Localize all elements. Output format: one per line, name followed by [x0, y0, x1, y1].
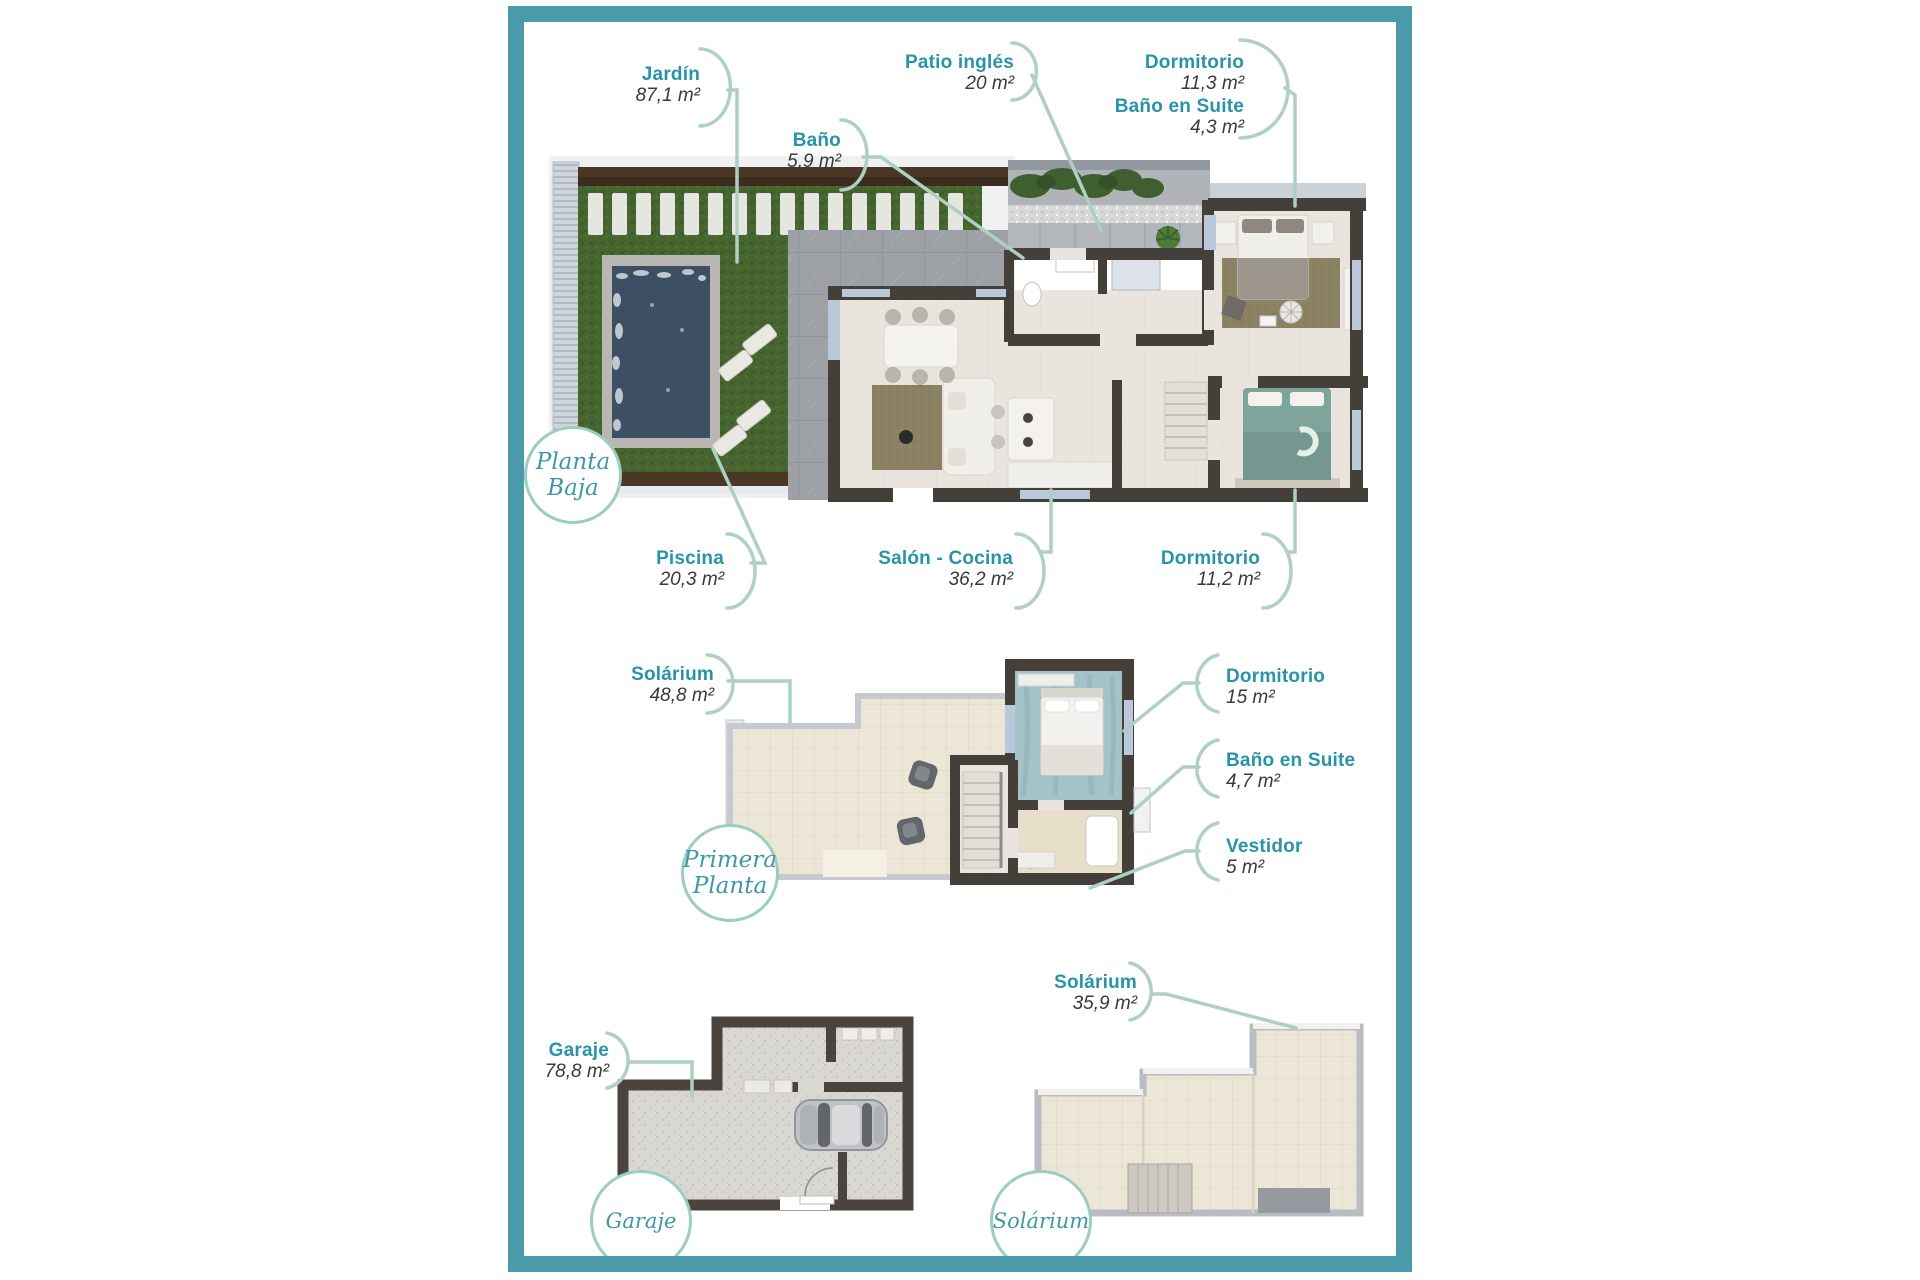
- floor-plans-graphic: [0, 0, 1920, 1280]
- room-name: Salón - Cocina: [813, 548, 1013, 569]
- room-label-salon-cocina: Salón - Cocina 36,2 m²: [813, 548, 1013, 590]
- badge-line: Primera: [683, 847, 777, 873]
- room-area: 4,3 m²: [1044, 117, 1244, 138]
- solarium-plan: [1038, 1023, 1360, 1213]
- bedroom2-furniture: [1235, 388, 1340, 492]
- room-name: Dormitorio: [1044, 52, 1244, 73]
- room-label-vestidor: Vestidor 5 m²: [1226, 836, 1426, 878]
- room-label-solarium-2: Solárium 35,9 m²: [937, 972, 1137, 1014]
- floor-badge-primera-planta: Primera Planta: [681, 824, 779, 922]
- room-area: 78,8 m²: [409, 1061, 609, 1082]
- room-area: 5 m²: [1226, 857, 1426, 878]
- room-area: 20 m²: [814, 73, 1014, 94]
- room-label-dormitorio-1: Dormitorio 11,3 m²: [1044, 52, 1244, 94]
- room-name: Dormitorio: [1226, 666, 1426, 687]
- room-label-bano-suite-1: Baño en Suite 4,3 m²: [1044, 96, 1244, 138]
- floor-badge-solarium: Solárium: [990, 1170, 1092, 1272]
- badge-line: Garaje: [606, 1208, 677, 1234]
- floor-plan-page: Jardín 87,1 m² Baño 5,9 m² Patio inglés …: [0, 0, 1920, 1280]
- room-area: 4,7 m²: [1226, 771, 1426, 792]
- room-label-piscina: Piscina 20,3 m²: [524, 548, 724, 590]
- room-name: Patio inglés: [814, 52, 1014, 73]
- room-area: 87,1 m²: [500, 85, 700, 106]
- room-name: Piscina: [524, 548, 724, 569]
- room-area: 48,8 m²: [514, 685, 714, 706]
- pool: [602, 255, 720, 448]
- room-area: 11,3 m²: [1044, 73, 1244, 94]
- room-area: 5,9 m²: [641, 151, 841, 172]
- room-name: Baño: [641, 130, 841, 151]
- room-area: 11,2 m²: [1060, 569, 1260, 590]
- plan2-stairs: [963, 772, 1001, 868]
- room-name: Dormitorio: [1060, 548, 1260, 569]
- room-name: Jardín: [500, 64, 700, 85]
- room-label-bano: Baño 5,9 m²: [641, 130, 841, 172]
- plan2-bathroom: [1015, 810, 1122, 873]
- room-label-bano-suite-2: Baño en Suite 4,7 m²: [1226, 750, 1426, 792]
- badge-line: Baja: [547, 475, 598, 501]
- room-area: 20,3 m²: [524, 569, 724, 590]
- room-area: 35,9 m²: [937, 993, 1137, 1014]
- room-name: Baño en Suite: [1044, 96, 1244, 117]
- floor-badge-planta-baja: Planta Baja: [524, 426, 622, 524]
- room-area: 15 m²: [1226, 687, 1426, 708]
- room-name: Solárium: [514, 664, 714, 685]
- room-label-dormitorio-3: Dormitorio 15 m²: [1226, 666, 1426, 708]
- car: [795, 1100, 887, 1150]
- badge-line: Planta: [536, 449, 610, 475]
- floor-badge-garaje: Garaje: [590, 1170, 692, 1272]
- room-label-jardin: Jardín 87,1 m²: [500, 64, 700, 106]
- badge-line: Solárium: [993, 1208, 1089, 1234]
- room-label-solarium-1: Solárium 48,8 m²: [514, 664, 714, 706]
- room-label-dormitorio-2: Dormitorio 11,2 m²: [1060, 548, 1260, 590]
- planta-baja-plan: [549, 156, 1368, 502]
- room-name: Solárium: [937, 972, 1137, 993]
- room-label-patio-ingles: Patio inglés 20 m²: [814, 52, 1014, 94]
- room-name: Baño en Suite: [1226, 750, 1426, 771]
- room-area: 36,2 m²: [813, 569, 1013, 590]
- room-label-garaje: Garaje 78,8 m²: [409, 1040, 609, 1082]
- room-name: Vestidor: [1226, 836, 1426, 857]
- badge-line: Planta: [693, 873, 767, 899]
- room-name: Garaje: [409, 1040, 609, 1061]
